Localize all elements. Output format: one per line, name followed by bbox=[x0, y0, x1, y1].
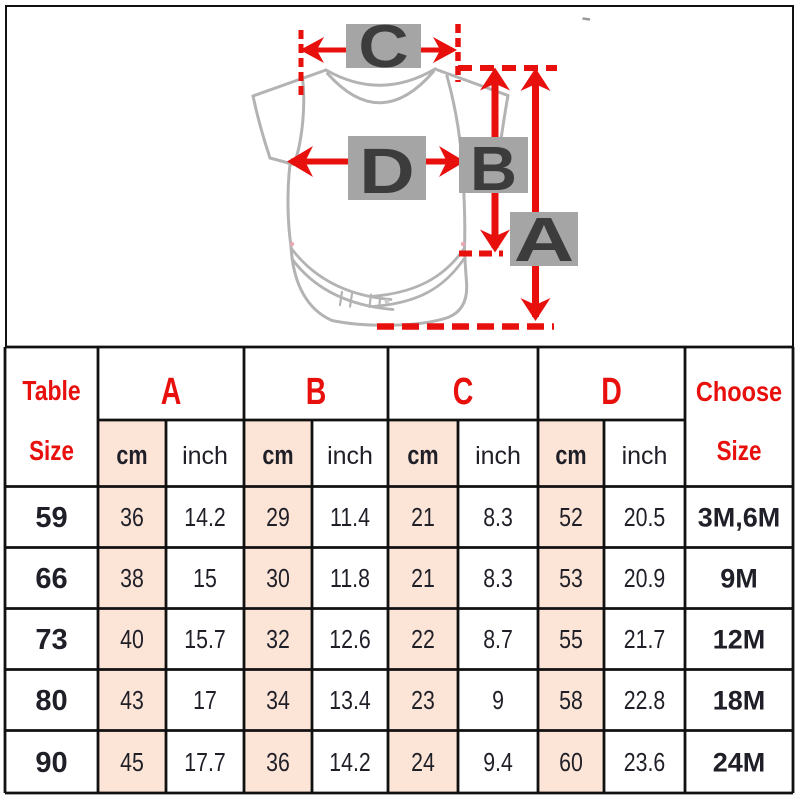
svg-text:66: 66 bbox=[35, 563, 67, 595]
svg-text:C: C bbox=[358, 13, 408, 80]
svg-text:90: 90 bbox=[35, 747, 67, 779]
svg-text:12.6: 12.6 bbox=[329, 625, 370, 655]
svg-text:Size: Size bbox=[717, 436, 762, 467]
svg-text:Table: Table bbox=[22, 376, 80, 407]
svg-text:80: 80 bbox=[35, 685, 67, 717]
svg-text:8.3: 8.3 bbox=[483, 564, 513, 594]
svg-text:23.6: 23.6 bbox=[624, 748, 665, 778]
svg-text:B: B bbox=[306, 371, 327, 413]
svg-text:9M: 9M bbox=[720, 564, 758, 594]
svg-text:cm: cm bbox=[262, 441, 293, 471]
svg-text:18M: 18M bbox=[713, 686, 766, 716]
svg-text:D: D bbox=[601, 371, 622, 413]
svg-text:53: 53 bbox=[559, 564, 583, 594]
svg-text:inch: inch bbox=[182, 442, 228, 470]
svg-text:Size: Size bbox=[29, 436, 74, 467]
svg-text:73: 73 bbox=[35, 624, 67, 656]
svg-text:inch: inch bbox=[475, 442, 521, 470]
svg-text:24M: 24M bbox=[713, 747, 766, 777]
svg-text:60: 60 bbox=[559, 748, 583, 778]
svg-text:inch: inch bbox=[622, 442, 668, 470]
svg-text:23: 23 bbox=[411, 686, 435, 716]
svg-text:12M: 12M bbox=[713, 625, 766, 655]
svg-text:14.2: 14.2 bbox=[329, 748, 370, 778]
svg-text:29: 29 bbox=[266, 503, 290, 533]
svg-text:cm: cm bbox=[407, 441, 438, 471]
svg-text:9.4: 9.4 bbox=[483, 748, 513, 778]
svg-text:B: B bbox=[470, 134, 517, 203]
svg-text:11.8: 11.8 bbox=[330, 564, 370, 594]
svg-text:8.3: 8.3 bbox=[483, 503, 513, 533]
svg-text:Choose: Choose bbox=[696, 377, 782, 407]
svg-text:9: 9 bbox=[492, 686, 504, 716]
svg-text:22: 22 bbox=[411, 625, 435, 655]
svg-text:cm: cm bbox=[116, 441, 147, 471]
svg-text:36: 36 bbox=[266, 748, 290, 778]
svg-text:11.4: 11.4 bbox=[330, 503, 370, 533]
svg-text:59: 59 bbox=[35, 502, 67, 534]
svg-text:34: 34 bbox=[266, 686, 290, 716]
svg-text:21: 21 bbox=[411, 564, 435, 594]
svg-text:17: 17 bbox=[193, 686, 217, 716]
svg-text:inch: inch bbox=[327, 442, 373, 470]
svg-text:36: 36 bbox=[120, 503, 144, 533]
svg-text:A: A bbox=[514, 205, 574, 275]
svg-text:38: 38 bbox=[120, 564, 144, 594]
svg-text:20.9: 20.9 bbox=[624, 564, 665, 594]
svg-text:43: 43 bbox=[120, 686, 144, 716]
svg-text:55: 55 bbox=[559, 625, 583, 655]
svg-text:3M,6M: 3M,6M bbox=[698, 503, 781, 533]
svg-text:45: 45 bbox=[120, 748, 144, 778]
svg-text:21.7: 21.7 bbox=[624, 625, 665, 655]
svg-text:52: 52 bbox=[559, 503, 583, 533]
svg-text:21: 21 bbox=[411, 503, 435, 533]
svg-text:8.7: 8.7 bbox=[483, 625, 513, 655]
svg-text:58: 58 bbox=[559, 686, 583, 716]
svg-text:32: 32 bbox=[266, 625, 290, 655]
svg-text:40: 40 bbox=[120, 625, 144, 655]
svg-text:24: 24 bbox=[411, 748, 435, 778]
svg-text:20.5: 20.5 bbox=[624, 503, 665, 533]
svg-text:15: 15 bbox=[193, 564, 217, 594]
svg-text:C: C bbox=[453, 371, 474, 413]
svg-text:13.4: 13.4 bbox=[329, 686, 370, 716]
svg-text:17.7: 17.7 bbox=[184, 748, 225, 778]
svg-text:15.7: 15.7 bbox=[184, 625, 225, 655]
svg-text:cm: cm bbox=[555, 441, 586, 471]
svg-text:14.2: 14.2 bbox=[184, 503, 225, 533]
svg-text:D: D bbox=[359, 135, 414, 207]
svg-text:30: 30 bbox=[266, 564, 290, 594]
svg-text:A: A bbox=[161, 371, 182, 413]
svg-text:22.8: 22.8 bbox=[624, 686, 665, 716]
